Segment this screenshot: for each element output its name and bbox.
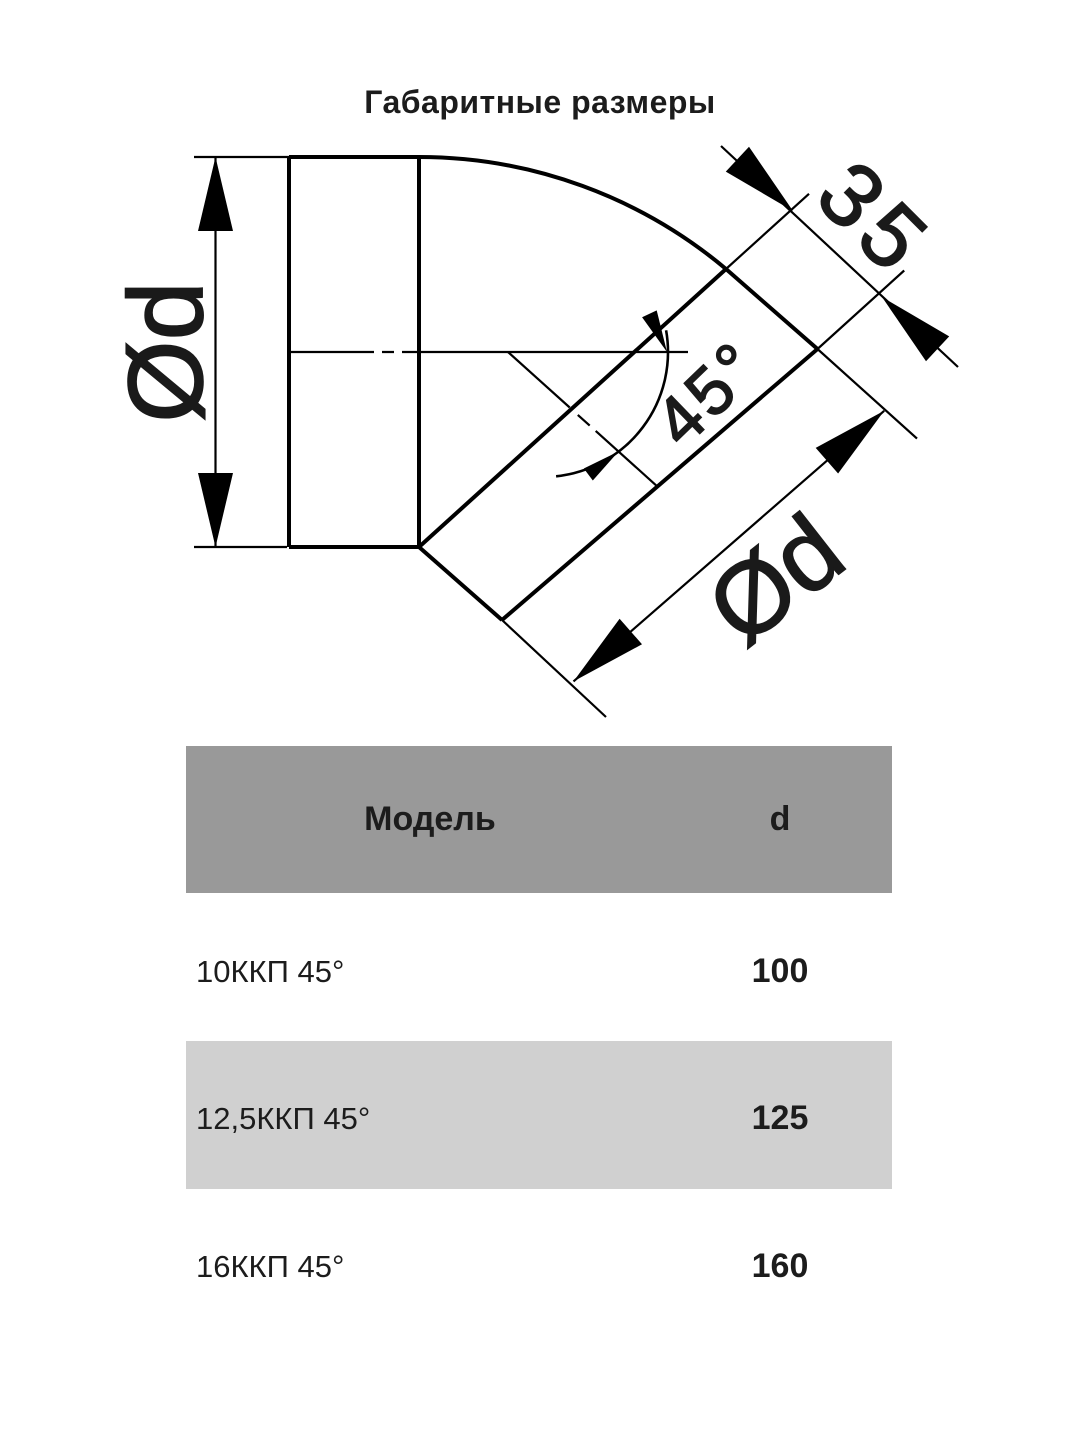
svg-text:Ød: Ød [107,281,225,422]
svg-text:Ød: Ød [687,492,864,666]
svg-text:35: 35 [798,143,951,296]
svg-text:45°: 45° [640,326,775,460]
